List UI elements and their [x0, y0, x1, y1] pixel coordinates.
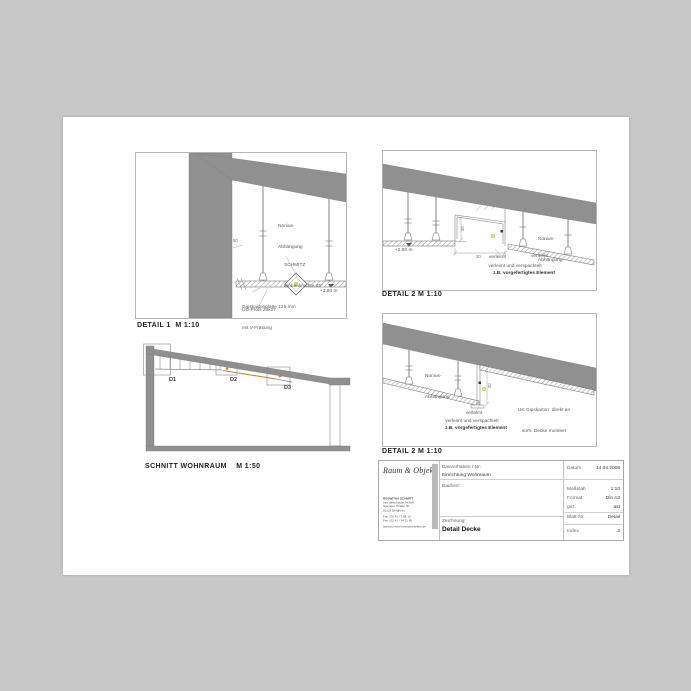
dimension-20-horizontal: 20	[476, 254, 481, 259]
title-block: Raum & Objekt ROSWITHA SCHMITT Innenarch…	[378, 460, 624, 541]
date-value: 14.04.2008	[563, 466, 620, 471]
cove-light	[491, 234, 495, 238]
dimension-20: 20	[487, 383, 492, 388]
nonius-hangers-left	[404, 192, 440, 240]
note-prefab-element: z.B. vorgefertigtes Element	[436, 426, 516, 433]
note-line2: verleimt und verspachtelt	[479, 264, 551, 271]
uk-gipskarton-label: UK Gipskarton direkt an vorh. Decke mont…	[509, 395, 579, 449]
left-wall	[146, 346, 154, 446]
elevation-label: +2,80 m	[320, 289, 337, 296]
note-verleimt-right: verleimt	[531, 254, 548, 261]
detail1-panel: 50 Nonius- Abhängung SCHMITZ Einbauleuch…	[135, 152, 347, 319]
drawing-viewer-canvas: 50 Nonius- Abhängung SCHMITZ Einbauleuch…	[0, 0, 691, 691]
drawing-label: Zeichnung:	[442, 519, 466, 524]
sloped-roof-beam	[383, 323, 596, 391]
cove-light	[482, 387, 486, 391]
wall-section	[189, 153, 232, 318]
detail3-panel: 20 Nonius- Abhängung UK Gipskarton direk…	[382, 313, 597, 447]
divider	[563, 512, 623, 513]
flat-roof-section	[329, 378, 350, 385]
client-label: Bauherr:	[442, 484, 460, 489]
divider	[439, 479, 623, 480]
floor-slab	[146, 446, 350, 451]
detail1-title: DETAIL 1 M 1:10	[137, 322, 200, 329]
project-value: Einrichtung Wohnraum	[442, 473, 491, 478]
schnitt-drawing: D1 D2 D3	[143, 343, 353, 458]
format-value: Din A3	[563, 496, 620, 501]
ceiling-line-right	[276, 379, 292, 382]
dimension-20-vertical: 20	[460, 226, 465, 231]
drawing-title-value: Detail Decke	[442, 526, 481, 533]
gypsum-board-label: Gipskartonplatte 125 mm mit V-Fräsung	[242, 292, 296, 346]
divider	[439, 461, 440, 540]
flat-ceiling-strip	[383, 241, 455, 246]
marker-d1: D1	[169, 377, 176, 383]
note-verleimt-left: verleimt	[489, 255, 506, 262]
cove-light-d3	[279, 375, 282, 378]
fixing-marker	[479, 382, 482, 385]
dimension-50: 50	[233, 238, 238, 243]
scale-value: 1:10	[563, 487, 620, 492]
drawing-sheet: 50 Nonius- Abhängung SCHMITZ Einbauleuch…	[63, 117, 629, 575]
divider	[439, 516, 563, 517]
note-verleimt: verleimt	[456, 411, 492, 418]
firm-logo: Raum & Objekt	[383, 466, 436, 475]
elevation-label: +2,80 m	[395, 248, 412, 255]
website-line: www.schmitt-innenarchitektur.de	[383, 525, 440, 529]
sheet-number-value: Detail	[563, 515, 620, 520]
firm-address: ROSWITHA SCHMITT Innenarchitektin AKNW S…	[383, 497, 440, 529]
nonius-label: Nonius- Abhängung	[425, 361, 450, 415]
ceiling-line-flat	[155, 369, 222, 370]
drawn-by-value: ast	[563, 505, 620, 510]
sloped-roof-beam	[383, 164, 596, 224]
marker-d3: D3	[284, 385, 291, 391]
detail3-title: DETAIL 2 M 1:10	[382, 448, 442, 455]
fax-line: Fax | 02 41 / 74 31 50	[383, 519, 440, 523]
project-label: Bauvorhaben / Nr:	[442, 465, 481, 470]
divider	[563, 524, 623, 525]
schnitt-panel: D1 D2 D3	[143, 343, 353, 458]
right-column	[330, 385, 340, 446]
cove-light-d2	[226, 367, 229, 370]
note-prefab-element: z.B. vorgefertigtes Element	[484, 271, 564, 278]
dimension-lines	[453, 216, 507, 257]
fixing-marker	[501, 230, 504, 233]
detail2-panel: 20 20 +2,80 m Nonius- Abhängung verleimt…	[382, 150, 597, 291]
detail2-title: DETAIL 2 M 1:10	[382, 291, 442, 298]
ud-profile-label: UD-Profil 28x27	[242, 308, 276, 315]
note-line2: verleimt und verspachtelt	[436, 419, 508, 426]
marker-d2: D2	[230, 377, 237, 383]
cove-lip	[471, 405, 484, 408]
schnitt-title: SCHNITT WOHNRAUM M 1:50	[145, 463, 260, 470]
index-value: .2	[563, 529, 620, 534]
